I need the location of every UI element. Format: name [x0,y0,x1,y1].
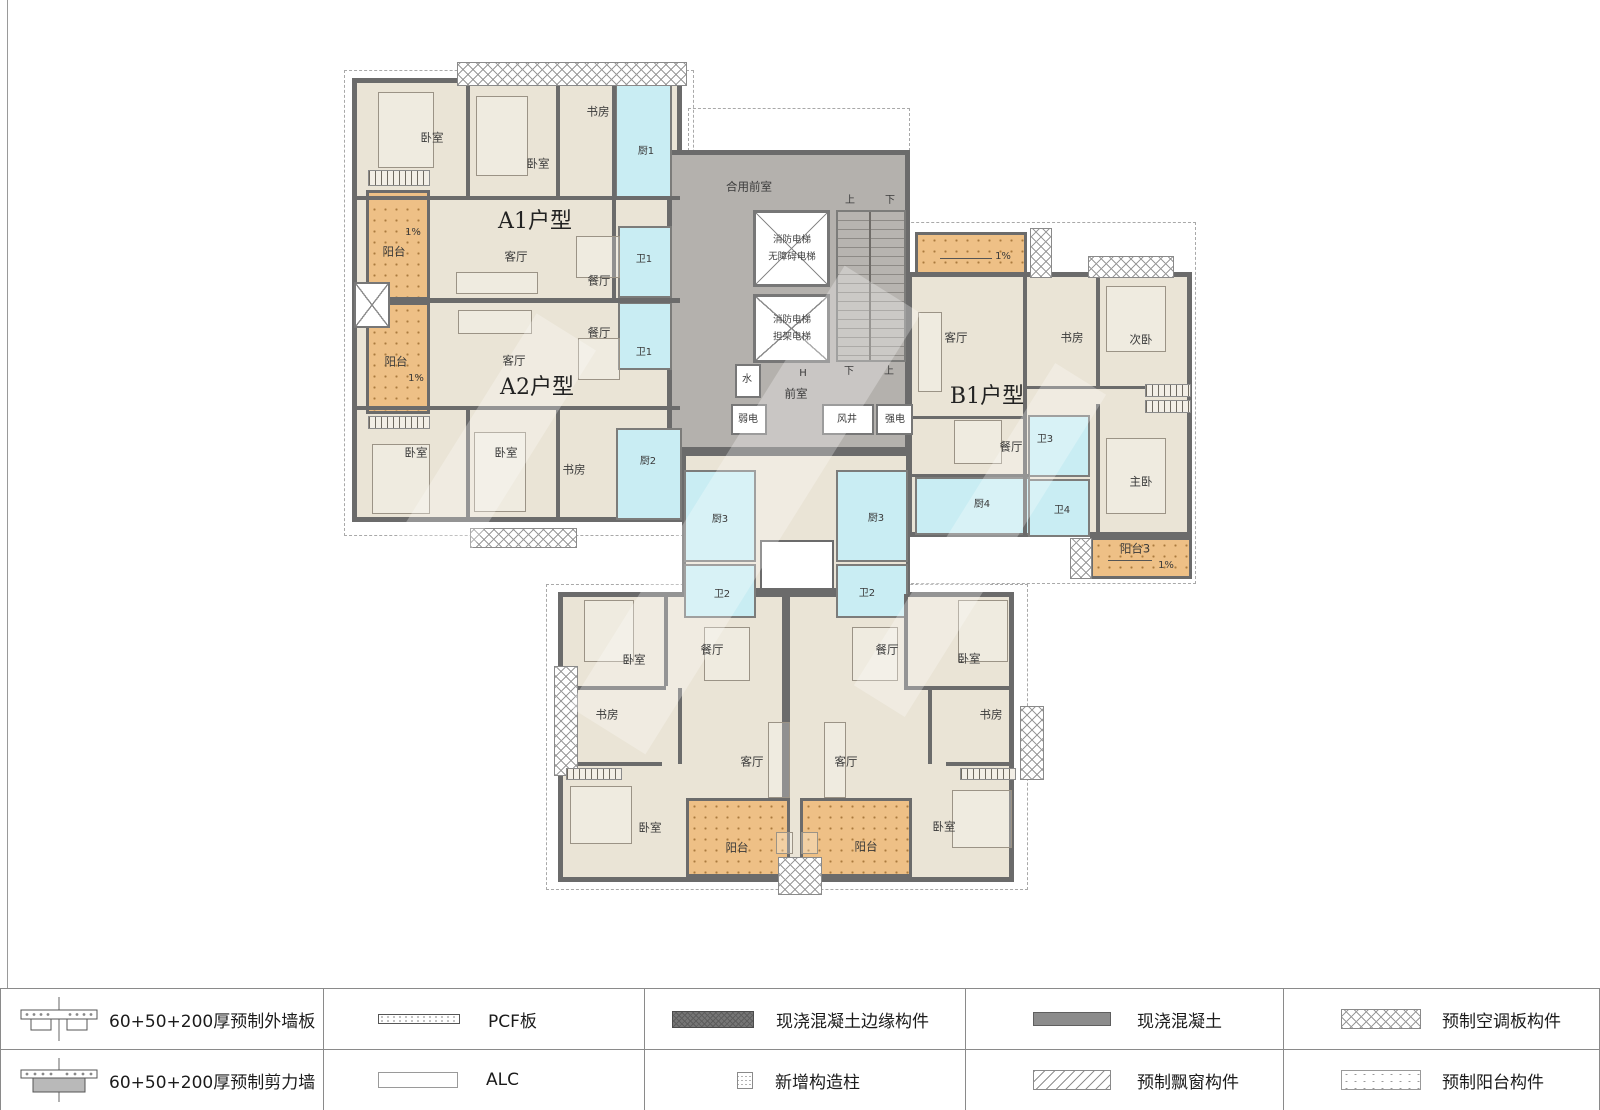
room-label-kitchen3: 厨3 [868,514,884,524]
wardrobe-strip [1145,384,1191,397]
room-label-kitchen2: 厨2 [640,457,656,467]
bed [570,786,632,844]
room-label-bedroom: 卧室 [421,132,444,144]
edge-member-bar-icon [672,1011,754,1028]
room-label-master-bedroom: 主卧 [1130,476,1153,488]
exterior-wall-section-icon [19,997,99,1041]
room-label-study: 书房 [596,709,619,721]
legend-label: 60+50+200厚预制外墙板 [109,1007,315,1032]
wall [354,406,680,410]
sofa [456,272,538,294]
core-label-weak-power: 弱电 [738,415,758,425]
ac-panel-hatch-a-bottom [470,528,577,548]
room-label-bedroom: 卧室 [405,447,428,459]
unit-title-a1: A1户型 [498,211,572,233]
pcf-bar-icon [378,1014,460,1024]
slope-label: 1% [408,374,424,384]
wall [354,298,680,303]
elevator-fire-stretcher [753,294,830,363]
bath-3-zone [1028,415,1090,477]
room-label-bedroom: 卧室 [933,821,956,833]
room-label-balcony: 阳台 [385,356,408,368]
bed [474,432,526,512]
ac-panel-hatch-top [457,62,687,86]
slope-label: 1% [995,252,1011,262]
alc-bar-icon [378,1072,458,1088]
wall [556,80,560,198]
sofa [458,310,532,334]
room-label-second-bedroom: 次卧 [1130,334,1153,346]
bay-window-strip [368,170,430,186]
legend-cell-pcf: PCF板 [324,989,645,1050]
wardrobe-strip [566,768,622,780]
legend-label: 现浇混凝土边缘构件 [776,1007,929,1032]
ac-panel-hatch-b1-left [1030,228,1052,278]
bay-window-bar-icon [1033,1070,1111,1090]
legend-label: 新增构造柱 [775,1068,860,1093]
stair-down-label: 下 [844,367,854,377]
room-label-balcony3: 阳台3 [1120,543,1150,555]
room-label-living: 客厅 [945,332,968,344]
room-label-dining: 餐厅 [701,644,724,656]
room-label-bath1: 卫1 [636,348,652,358]
core-label-shared-vestibule: 合用前室 [726,181,772,193]
wall [354,196,680,200]
legend-cell-ac-panel: 预制空调板构件 [1284,989,1600,1050]
core-label-vestibule: 前室 [785,388,808,400]
washing-machine [776,832,793,854]
legend-label: 预制阳台构件 [1442,1068,1544,1093]
wall [466,408,470,520]
bed [952,790,1012,848]
legend-cell-bay-window: 预制飘窗构件 [966,1050,1284,1110]
wall [1096,404,1100,535]
elevator-label: 无障碍电梯 [768,252,816,262]
wall [664,594,668,686]
legend-cell-alc: ALC [324,1050,645,1110]
bed [476,96,528,176]
elevator-label: 担架电梯 [773,332,811,342]
room-label-bath3: 卫3 [1037,435,1053,445]
bay-window-strip [368,416,430,429]
dining-table [576,236,620,278]
dining-table [578,338,620,380]
ac-panel-hatch-entry [778,857,822,895]
room-label-study: 书房 [563,464,586,476]
stair-divider [869,212,871,360]
stair-up-label: 上 [845,196,855,206]
room-label-balcony: 阳台 [726,842,749,854]
legend-cell-balcony: 预制阳台构件 [1284,1050,1600,1110]
washing-machine [801,832,818,854]
room-label-bedroom: 卧室 [639,822,662,834]
legend-label: ALC [486,1070,519,1090]
room-label-study: 书房 [587,106,610,118]
floor-plan-sheet: A1户型 A2户型 B1户型 卧室 卧室 书房 厨1 阳台 1% 客厅 餐厅 卫… [0,0,1600,1110]
room-label-bath4: 卫4 [1054,506,1070,516]
unit-title-a2: A2户型 [500,377,574,399]
kitchen-1-zone [615,80,672,200]
unit-title-b1: B1户型 [950,386,1024,408]
room-label-living: 客厅 [503,355,526,367]
boundary-dashed-core-top [688,108,910,156]
legend-label: PCF板 [488,1007,537,1032]
room-label-bedroom: 卧室 [495,447,518,459]
structural-column-icon [737,1072,753,1089]
wall [678,688,682,764]
core-label-strong-power: 强电 [885,415,905,425]
slope-label: 1% [1158,561,1174,571]
core-label-h: H [799,369,807,379]
wall [909,416,1025,419]
legend-label: 现浇混凝土 [1137,1007,1222,1032]
legend-cell-cast-concrete: 现浇混凝土 [966,989,1284,1050]
elevator-label: 消防电梯 [773,315,811,325]
legend-label: 60+50+200厚预制剪力墙 [109,1068,315,1093]
wall [1096,276,1100,388]
ac-panel-hatch-b1-top [1088,256,1174,278]
room-label-balcony: 阳台 [855,841,878,853]
wall [928,688,932,764]
legend-label: 预制飘窗构件 [1137,1068,1239,1093]
dining-table [954,420,1002,464]
wall [556,408,560,520]
slope-label: 1% [405,228,421,238]
room-label-bedroom: 卧室 [623,654,646,666]
kitchen-2-zone [616,428,682,520]
slope-arrow [940,258,992,259]
wall [904,686,1010,690]
ac-panel-hatch-b1-balcony [1070,538,1092,579]
ac-platform-box [354,282,390,328]
room-label-bath2: 卫2 [714,590,730,600]
legend-label: 预制空调板构件 [1442,1007,1561,1032]
legend-cell-edge-member: 现浇混凝土边缘构件 [645,989,966,1050]
room-label-kitchen3: 厨3 [712,515,728,525]
room-label-living: 客厅 [505,251,528,263]
balcony-bar-icon [1341,1070,1421,1090]
sofa [768,722,790,798]
wall [466,80,470,198]
room-label-study: 书房 [1061,332,1084,344]
ac-panel-hatch-bottom-right [1020,706,1044,780]
room-label-living: 客厅 [835,756,858,768]
legend-cell-structural-column: 新增构造柱 [645,1050,966,1110]
frame-border-left [7,0,8,988]
legend-cell-exterior-wall: 60+50+200厚预制外墙板 [1,989,324,1050]
sofa [918,312,942,392]
staircase [836,210,906,362]
elevator-label: 消防电梯 [773,235,811,245]
legend-table: 60+50+200厚预制外墙板 PCF板 现浇混凝土边缘构件 现浇混凝土 预制空… [0,988,1600,1110]
room-label-bedroom: 卧室 [958,653,981,665]
core-label-water: 水 [742,375,752,385]
room-label-bedroom: 卧室 [527,158,550,170]
room-label-dining: 餐厅 [876,644,899,656]
room-label-bath1: 卫1 [636,255,652,265]
room-label-bath2: 卫2 [859,589,875,599]
room-label-kitchen4: 厨4 [974,500,990,510]
slope-arrow [1108,560,1152,561]
bath-1-a2-zone [618,302,672,370]
cast-concrete-bar-icon [1033,1012,1111,1026]
wall [904,594,908,686]
balcony-bottom-left [686,798,790,877]
wardrobe-strip [1145,400,1191,413]
wall [946,762,1010,766]
shear-wall-section-icon [19,1058,99,1102]
room-label-living: 客厅 [741,756,764,768]
room-label-balcony: 阳台 [383,246,406,258]
ac-panel-bar-icon [1341,1009,1421,1029]
room-label-dining: 餐厅 [588,327,611,339]
wardrobe-strip [960,768,1016,780]
room-label-dining: 餐厅 [588,275,611,287]
light-well [760,540,834,590]
kitchen-4-zone [915,477,1030,535]
elevator-fire-accessible [753,210,830,287]
wall [909,474,1029,477]
core-label-air-shaft: 风井 [837,415,857,425]
stair-down-label: 下 [885,196,895,206]
stair-up-label: 上 [884,367,894,377]
room-label-kitchen1: 厨1 [638,147,654,157]
room-label-dining: 餐厅 [1000,441,1023,453]
room-label-study: 书房 [980,709,1003,721]
legend-cell-shear-wall: 60+50+200厚预制剪力墙 [1,1050,324,1110]
ac-panel-hatch-bottom-left [554,666,578,776]
